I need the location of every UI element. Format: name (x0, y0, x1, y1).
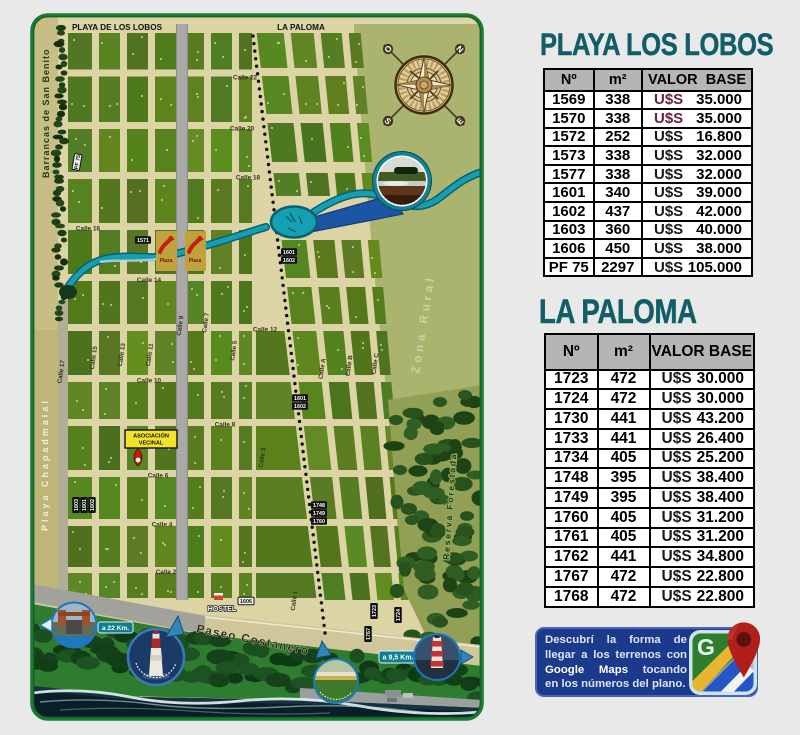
svg-text:1602: 1602 (294, 404, 306, 410)
svg-text:Calle 16: Calle 16 (76, 226, 101, 233)
svg-text:Playa Chapadmalal: Playa Chapadmalal (40, 398, 50, 531)
svg-text:Calle 4: Calle 4 (152, 522, 173, 529)
svg-text:Calle 2: Calle 2 (156, 569, 177, 576)
svg-text:1602: 1602 (90, 499, 96, 511)
svg-text:PLAYA DE LOS LOBOS: PLAYA DE LOS LOBOS (72, 23, 163, 32)
svg-text:Plaza: Plaza (160, 258, 173, 264)
svg-text:HOSTEL: HOSTEL (208, 606, 237, 613)
svg-text:1723: 1723 (372, 605, 378, 617)
svg-text:LA PALOMA: LA PALOMA (277, 23, 325, 32)
svg-text:Calle 22: Calle 22 (233, 75, 258, 82)
svg-text:1760: 1760 (313, 519, 325, 525)
svg-text:Barrancas de San Benito: Barrancas de San Benito (41, 48, 51, 178)
svg-text:ASOCIACIÓN: ASOCIACIÓN (133, 432, 169, 440)
svg-text:1748: 1748 (313, 503, 325, 509)
svg-text:1606: 1606 (240, 599, 252, 605)
svg-text:1603: 1603 (74, 499, 80, 511)
svg-text:1601: 1601 (294, 396, 306, 402)
svg-text:Plaza: Plaza (189, 258, 202, 264)
svg-text:1749: 1749 (313, 511, 325, 517)
svg-text:Calle 20: Calle 20 (230, 126, 255, 133)
svg-text:1724: 1724 (396, 609, 402, 621)
svg-text:1602: 1602 (283, 258, 295, 264)
svg-text:1601: 1601 (283, 250, 295, 256)
svg-text:Calle 14: Calle 14 (137, 277, 162, 284)
svg-text:Calle 10: Calle 10 (137, 378, 162, 385)
svg-text:1601: 1601 (82, 499, 88, 511)
svg-text:1767: 1767 (366, 628, 372, 640)
svg-text:1571: 1571 (137, 238, 149, 244)
svg-text:Calle 8: Calle 8 (215, 422, 236, 429)
svg-text:Calle 18: Calle 18 (236, 175, 261, 182)
svg-text:a 22 Km.: a 22 Km. (102, 625, 129, 632)
svg-text:Calle 6: Calle 6 (148, 473, 169, 480)
svg-text:Calle 12: Calle 12 (253, 327, 278, 334)
svg-text:G: G (697, 634, 715, 660)
svg-text:a 9,5 Km.: a 9,5 Km. (383, 655, 414, 662)
svg-text:VECINAL: VECINAL (139, 441, 164, 447)
